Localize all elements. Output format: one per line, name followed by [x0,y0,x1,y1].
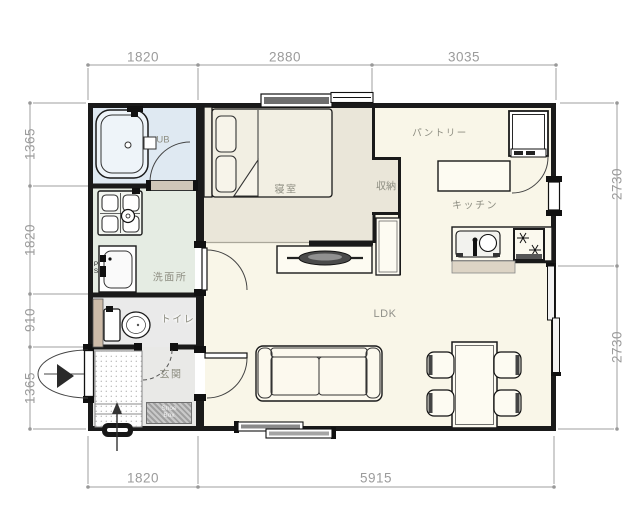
floorplan-page: 1820 2880 3035 1820 5915 1365 1820 910 1… [0,0,640,508]
counter-strip [452,261,515,273]
pillow [216,156,236,192]
label-pantry: パントリー [412,125,467,139]
dim-bottom-1: 1820 [127,471,159,486]
label-toilet: トイレ [161,311,196,326]
bath-door-threshold [146,180,198,191]
dim-right-1: 2730 [610,168,625,200]
label-living: LDK [374,308,397,320]
dim-left-3: 910 [23,308,38,332]
dim-top-3: 3035 [448,50,480,65]
dim-top-1: 1820 [127,50,159,65]
label-kitchen: キッチン [452,197,498,212]
faucet-icon [473,241,477,256]
label-bedroom: 寝室 [275,181,298,196]
kitchen-back-door [546,176,562,216]
floorplan-drawing [0,0,640,508]
label-entrance: 玄関 [160,366,183,381]
dim-right-2: 2730 [610,331,625,363]
pillow [216,116,236,152]
ldk-entrance-opening [195,353,205,396]
dim-left-2: 1820 [23,224,38,256]
label-closet: 収納 [376,178,396,193]
dim-bottom-2: 5915 [360,471,392,486]
label-bath: UB [156,135,169,146]
label-pipe-space: PS [92,261,100,276]
vanity-sink [99,246,136,292]
dim-left-1: 1365 [23,128,38,160]
toilet-shelf [93,299,103,347]
dim-ext-right [558,103,614,429]
washing-machine-pan [98,188,142,235]
kitchen-counter [438,161,510,191]
dining-table [452,342,497,428]
label-shoe-box: Shoe Box [156,406,182,420]
dining-chair [494,390,521,416]
bath-faucet-icon [127,106,143,112]
refrigerator [509,111,548,157]
dining-chair [427,390,454,416]
dining-chair [427,352,454,378]
stove [514,229,544,260]
dining-chair [494,352,521,378]
dim-top-2: 2880 [269,50,301,65]
sofa [256,346,382,401]
entrance-direction-marker [57,364,74,388]
tall-cabinet [376,218,400,275]
shoe-box: Shoe Box [146,402,192,424]
label-washroom: 洗面所 [153,269,188,284]
entrance-porch [95,351,142,427]
tv-board [277,246,372,273]
dim-left-4: 1365 [23,372,38,404]
bed [204,107,332,197]
